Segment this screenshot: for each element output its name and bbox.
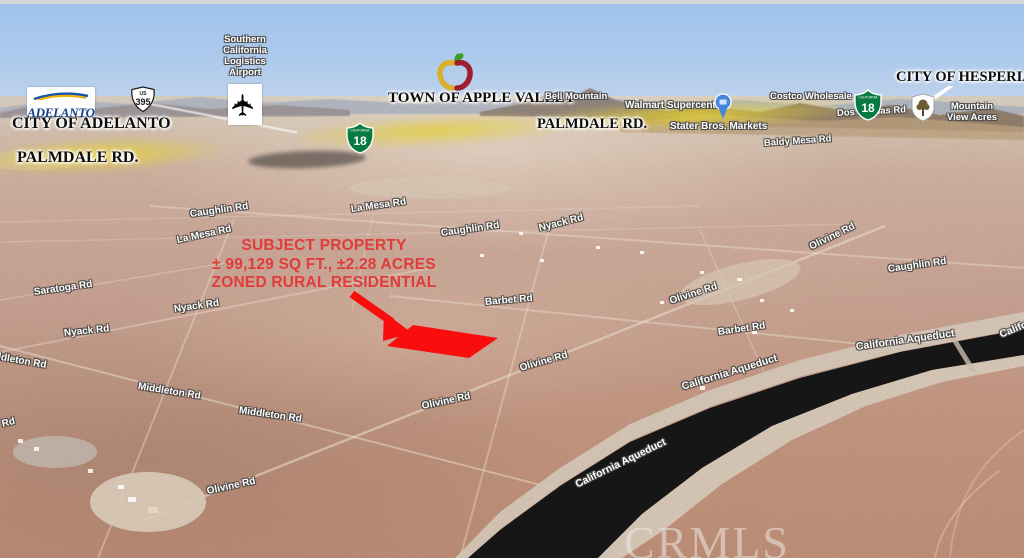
apple-valley-logo [436, 50, 474, 92]
stater-bros-markets-label: Stater Bros. Markets [670, 121, 767, 132]
aerial-map: CITY OF ADELANTO PALMDALE RD. TOWN OF AP… [0, 0, 1024, 558]
airplane-icon: ✈ [230, 92, 260, 117]
subject-property-annotation: SUBJECT PROPERTY ± 99,129 SQ FT., ±2.28 … [196, 237, 452, 293]
annotation-line-3: ZONED RURAL RESIDENTIAL [196, 274, 452, 293]
palmdale-rd-label-center: PALMDALE RD. [537, 116, 647, 133]
walmart-supercenter-label: Walmart Supercenter [625, 100, 725, 111]
costco-wholesale-label: Costco Wholesale [770, 91, 852, 102]
ca-18-shield: CALIFORNIA 18 [854, 89, 882, 121]
ca-shield-state-text: CALIFORNIA [858, 96, 878, 100]
logistics-airport-label: Southern California Logistics Airport [210, 34, 280, 78]
subject-property-marker [352, 294, 498, 358]
bell-mountain-label: Bell Mountain [545, 91, 607, 102]
ca-shield-number: 18 [861, 101, 875, 115]
annotation-line-1: SUBJECT PROPERTY [196, 237, 452, 256]
annotation-graphics [0, 0, 1024, 558]
walmart-pin-icon [714, 93, 732, 120]
adelanto-logo-swoosh [28, 89, 94, 100]
apple-left-half [440, 63, 453, 88]
crmls-watermark: CRMLS [624, 516, 790, 558]
hesperia-seal-icon [910, 84, 960, 124]
us-395-shield: US 395 [130, 86, 156, 113]
airport-icon-box: ✈ [228, 84, 262, 125]
top-border-strip [0, 0, 1024, 4]
adelanto-city-logo: ADELANTO [27, 87, 95, 116]
ca-18-shield: CALIFORNIA 18 [346, 122, 374, 154]
ca-shield-number: 18 [353, 134, 367, 148]
apple-right-half [457, 63, 470, 88]
palmdale-rd-label-west: PALMDALE RD. [17, 149, 138, 167]
annotation-line-2: ± 99,129 SQ FT., ±2.28 ACRES [196, 256, 452, 275]
adelanto-logo-text: ADELANTO [27, 105, 95, 120]
ca-shield-state-text: CALIFORNIA [350, 129, 370, 133]
us-shield-number: 395 [135, 97, 150, 107]
